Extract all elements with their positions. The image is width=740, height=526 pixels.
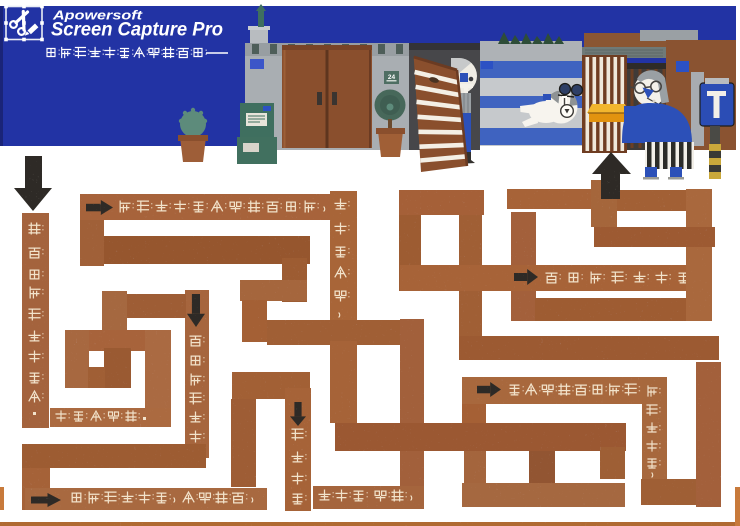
svg-text:24: 24 xyxy=(388,74,396,81)
svg-text:Screen Capture Pro: Screen Capture Pro xyxy=(51,20,223,41)
